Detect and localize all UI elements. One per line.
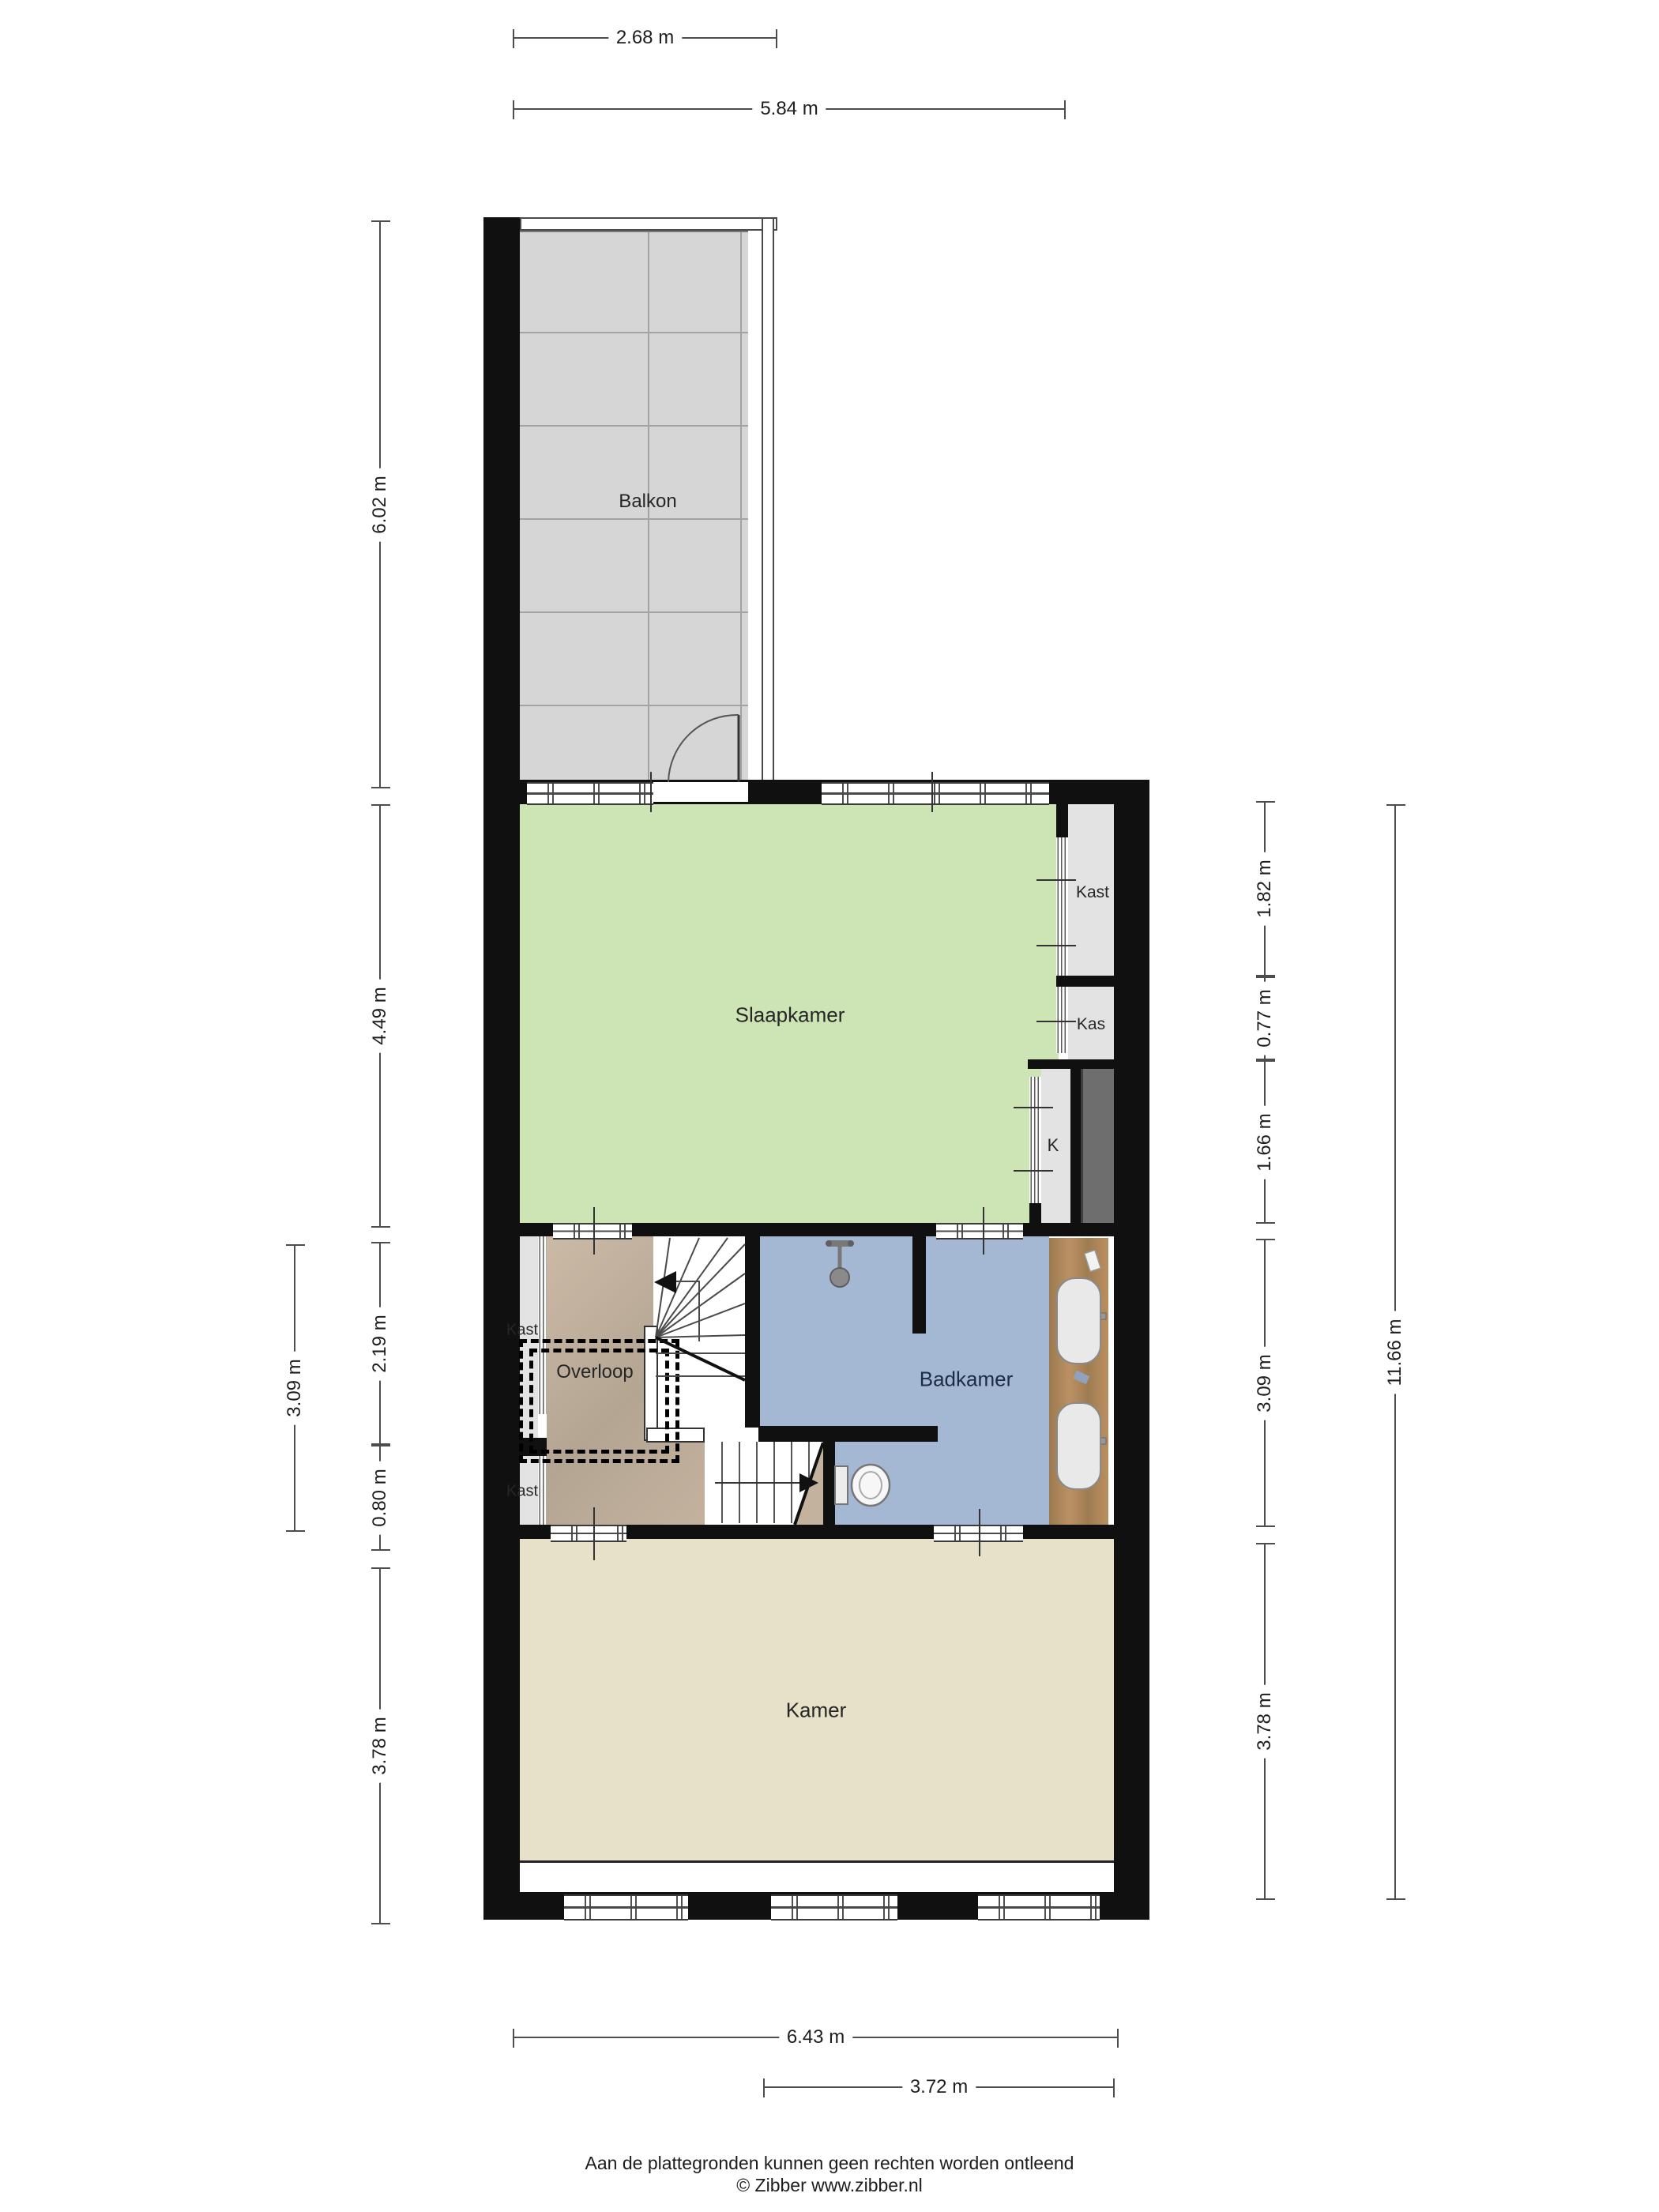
footer-copyright: © Zibber www.zibber.nl: [0, 2175, 1659, 2196]
wall-winder-east: [745, 1236, 760, 1428]
room-label-kast-upper: Kast: [506, 1322, 538, 1340]
dim-right-k-height: 1.66 m: [1264, 1061, 1266, 1223]
sliding-door-kast: [1056, 837, 1068, 976]
wall-shower-stub: [912, 1236, 926, 1334]
window-balcony-1: [527, 782, 653, 805]
dim-left-balcony-height: 6.02 m: [379, 221, 381, 788]
dim-right-bathroom-height: 3.09 m: [1264, 1240, 1266, 1526]
straight-stair-floor: [705, 1440, 823, 1525]
window-kamer-2: [771, 1894, 897, 1920]
wall-k-stub: [1029, 1203, 1041, 1223]
dim-left-bedroom-height: 4.49 m: [379, 805, 381, 1227]
dim-right-total-height: 11.66 m: [1394, 805, 1396, 1899]
footer-disclaimer: Aan de plattegronden kunnen geen rechten…: [0, 2153, 1659, 2174]
room-label-kast-lower: Kast: [506, 1483, 538, 1501]
sink-basin-1: [1056, 1277, 1101, 1364]
dim-bottom-width: 6.43 m: [513, 2037, 1118, 2038]
dim-left-closet-height: 0.80 m: [379, 1446, 381, 1550]
dim-left-kamer-height: 3.78 m: [379, 1568, 381, 1924]
sliding-door-k: [1029, 1077, 1041, 1203]
balcony-railing-right: [762, 217, 774, 781]
window-balcony-2: [822, 782, 1049, 805]
room-label-kast-top: Kast: [1076, 883, 1109, 902]
window-kamer-1: [564, 1894, 688, 1920]
wall-kast-kas-divider: [1056, 976, 1114, 987]
sliding-door-closet-lower: [538, 1456, 547, 1525]
dormer-sill-band: [520, 1860, 1115, 1894]
wall-toilet-partition: [758, 1426, 938, 1442]
wall-left-outer: [483, 217, 520, 1920]
window-bedroom-landing: [553, 1223, 632, 1240]
shaft: [1081, 1069, 1116, 1223]
wall-kast-stub: [1056, 804, 1068, 837]
dim-left-middle-total: 3.09 m: [294, 1245, 295, 1531]
room-label-overloop: Overloop: [556, 1361, 633, 1383]
wall-stair-east-lower: [823, 1440, 835, 1525]
window-bedroom-bathroom: [936, 1223, 1023, 1240]
dim-bottom-kamer-width: 3.72 m: [764, 2086, 1114, 2088]
room-label-slaapkamer: Slaapkamer: [735, 1003, 845, 1028]
wall-right-outer: [1114, 780, 1149, 1920]
dim-top-balcony: 2.68 m: [513, 37, 777, 39]
balcony-door-opening: [653, 782, 748, 802]
room-label-balkon: Balkon: [619, 491, 676, 513]
dim-right-kas-height: 0.77 m: [1264, 977, 1266, 1059]
dim-right-kast-height: 1.82 m: [1264, 802, 1266, 976]
window-kamer-3: [978, 1894, 1100, 1920]
wall-kas-bottom: [1028, 1059, 1114, 1069]
sliding-door-kas: [1056, 987, 1068, 1053]
window-bathroom-kamer: [934, 1525, 1023, 1542]
room-label-k: K: [1048, 1135, 1059, 1156]
room-label-kamer: Kamer: [786, 1698, 847, 1723]
dim-top-upper-width: 5.84 m: [513, 108, 1065, 110]
room-label-badkamer: Badkamer: [920, 1367, 1014, 1392]
wall-k-shaft-divider: [1070, 1069, 1081, 1223]
dim-right-kamer-height: 3.78 m: [1264, 1544, 1266, 1899]
balcony-railing-top: [520, 217, 777, 231]
dim-left-landing-height: 2.19 m: [379, 1243, 381, 1444]
window-landing-kamer: [551, 1525, 626, 1542]
room-label-kas: Kas: [1077, 1015, 1105, 1034]
floorplan-canvas: Balkon Slaapkamer Kast Kas K Kast Kast O…: [0, 0, 1659, 2212]
sink-basin-2: [1056, 1402, 1101, 1490]
